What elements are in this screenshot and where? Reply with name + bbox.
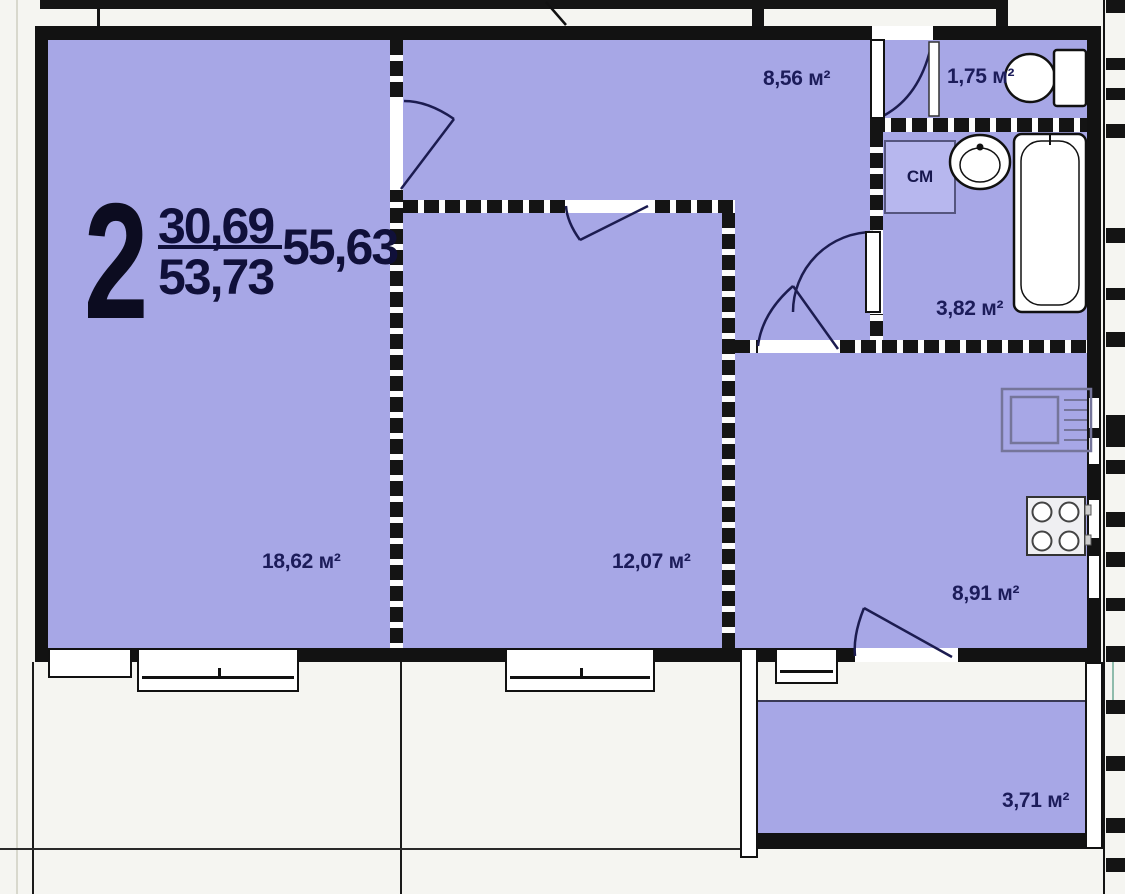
partition-wc-bath [870, 118, 1087, 132]
guide-line-green-2 [1112, 662, 1114, 702]
lower-terrace-line-bottom [0, 848, 740, 850]
neighbour-bar [1106, 858, 1125, 872]
neighbour-wall-line [1103, 0, 1105, 894]
lower-terrace-line-left [32, 662, 34, 894]
neighbour-bar [1106, 552, 1125, 567]
label-balcony: 3,71 м² [1002, 790, 1069, 811]
neighbour-bar [1106, 228, 1125, 243]
label-bedroom: 12,07 м² [612, 551, 691, 572]
neighbour-bar [1106, 0, 1125, 13]
neighbour-bar [1106, 700, 1125, 714]
washing-machine: СМ [884, 140, 956, 214]
shaft-slot [1089, 500, 1099, 538]
floor-plan: СМ [0, 0, 1125, 894]
upper-stub-3 [996, 0, 1008, 26]
area-main: 53,73 [158, 252, 273, 302]
door-opening-bath [870, 230, 883, 314]
door-opening-balcony [855, 648, 958, 662]
balcony-wall-left [740, 648, 758, 858]
balcony-wall-right [1085, 662, 1103, 849]
window-living-room [137, 648, 299, 692]
upper-corridor-line [40, 0, 1005, 9]
partition-bedroom-right [722, 213, 735, 648]
label-bathroom: 3,82 м² [936, 298, 1003, 319]
washing-machine-label: СМ [907, 167, 933, 187]
unit-number: 2 [84, 179, 145, 344]
wall-bottom [299, 648, 505, 662]
area-living: 30,69 [158, 201, 273, 251]
label-wc: 1,75 м² [947, 66, 1014, 87]
neighbour-bar [1106, 332, 1125, 347]
neighbour-bar [1106, 818, 1125, 833]
lower-terrace-line-mid [400, 662, 402, 894]
wall-bottom [35, 648, 48, 662]
neighbour-bar [1106, 415, 1125, 447]
balcony-wall-bottom [758, 833, 1103, 849]
wall-top-left [35, 26, 872, 40]
label-hallway: 8,56 м² [763, 68, 830, 89]
door-opening-kitchen [758, 340, 838, 353]
neighbour-bar [1106, 646, 1125, 662]
neighbour-bar [1106, 58, 1125, 70]
window-kitchen [775, 648, 838, 684]
neighbour-bar [1106, 288, 1125, 300]
site-edge-line [16, 0, 18, 894]
upper-stub-1 [97, 0, 100, 26]
door-opening-entrance [872, 26, 933, 40]
wall-bottom [838, 648, 855, 662]
window-bedroom [505, 648, 655, 692]
neighbour-bar [1106, 124, 1125, 138]
wall-bottom [958, 648, 1101, 662]
shaft-slot [1089, 438, 1099, 464]
area-total: 55,63 [282, 222, 397, 272]
neighbour-bar [1106, 88, 1125, 100]
balcony-floor-fill [758, 700, 1085, 833]
wall-top-right [933, 26, 1100, 40]
door-opening-living [390, 100, 403, 190]
neighbour-bar [1106, 598, 1125, 611]
neighbour-bar [1106, 512, 1125, 527]
label-kitchen: 8,91 м² [952, 583, 1019, 604]
neighbour-bar [1106, 460, 1125, 474]
door-opening-bedroom [565, 200, 650, 213]
neighbour-bar [1106, 756, 1125, 771]
upper-stub-2 [752, 0, 764, 26]
label-living-room: 18,62 м² [262, 551, 341, 572]
window-blank-panel [48, 648, 132, 678]
wall-left [35, 26, 48, 662]
shaft-slot [1089, 398, 1099, 428]
shaft-slot [1089, 556, 1099, 598]
